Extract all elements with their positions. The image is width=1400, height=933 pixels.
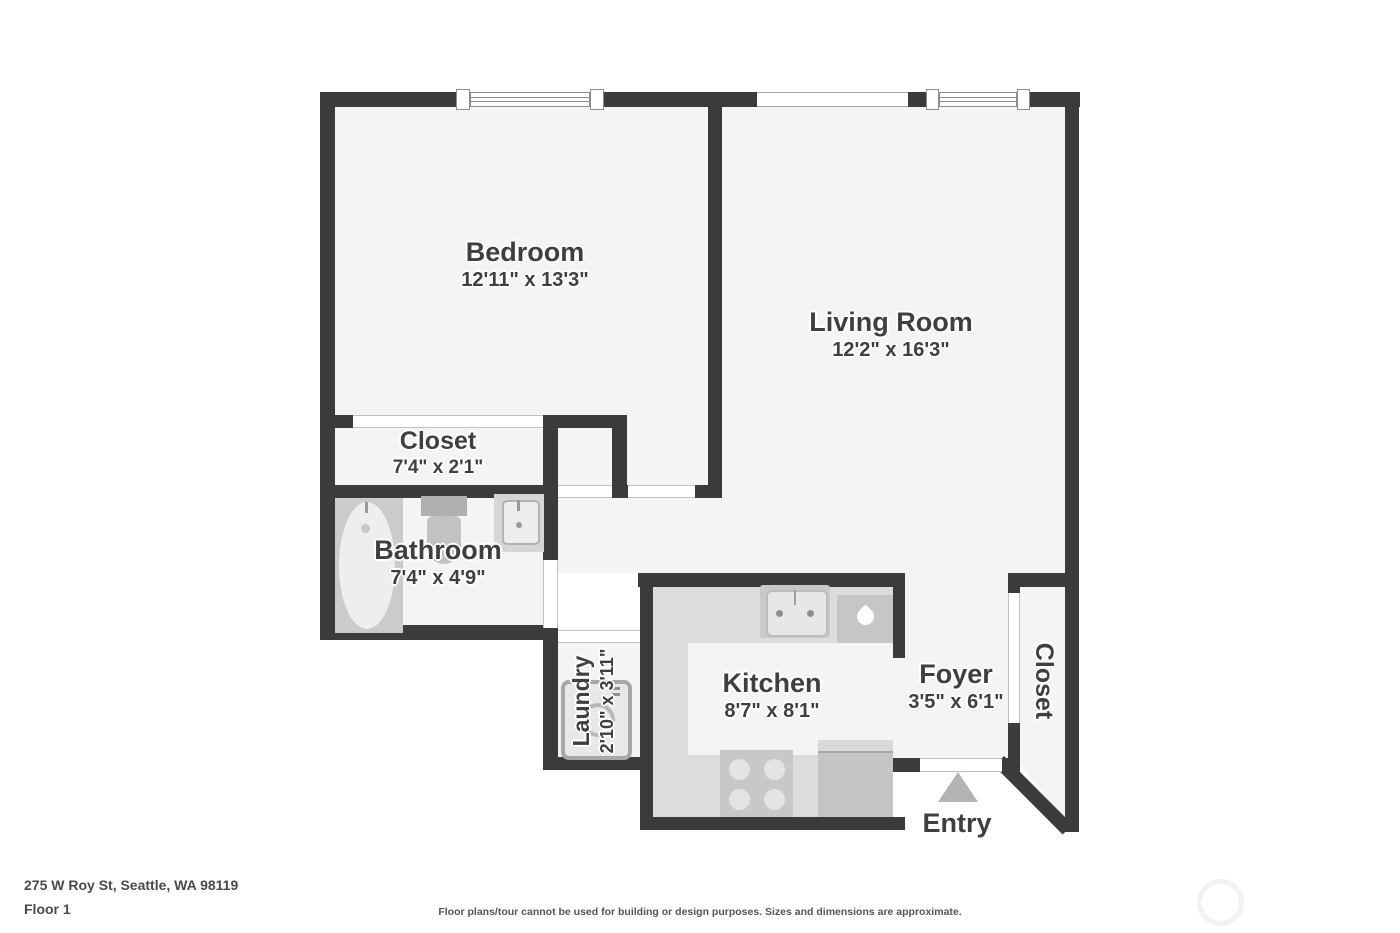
wall — [1008, 573, 1020, 593]
entry-arrow-icon — [938, 772, 978, 802]
disclaimer-text: Floor plans/tour cannot be used for buil… — [0, 906, 1400, 918]
living-room-floor — [722, 107, 1065, 498]
entry-label: Entry — [857, 808, 1057, 838]
kitchen-sink-divider — [794, 590, 796, 605]
bedroom-closet-dimensions: 7'4" x 2'1" — [338, 455, 538, 481]
bathroom-label: Bathroom 7'4" x 4'9" — [338, 535, 538, 592]
entry-name: Entry — [857, 808, 1057, 838]
window-cap — [1017, 89, 1030, 110]
wall — [695, 485, 722, 498]
door-opening — [558, 485, 612, 498]
window-glass — [939, 92, 1017, 107]
entry-door-opening — [920, 758, 1002, 772]
kitchen-sink-dot — [807, 610, 814, 617]
door-opening — [543, 560, 558, 628]
foyer-dimensions: 3'5" x 6'1" — [856, 689, 1056, 716]
stove-burner — [764, 789, 785, 810]
laundry-dimensions: 2'10" x 3'11" — [595, 649, 619, 754]
entry-closet-label: Closet — [1030, 643, 1058, 719]
wall — [543, 628, 558, 770]
bathroom-name: Bathroom — [338, 535, 538, 565]
window-cap — [590, 89, 604, 110]
stove-burner — [729, 759, 750, 780]
watermark-circle — [1197, 879, 1244, 926]
bedroom-closet-label: Closet 7'4" x 2'1" — [338, 427, 538, 481]
picture-window — [757, 92, 908, 107]
window-glass — [470, 92, 590, 107]
alcove-floor — [558, 428, 612, 485]
foyer-name: Foyer — [856, 659, 1056, 689]
door-opening — [558, 630, 640, 643]
laundry-name: Laundry — [569, 649, 595, 754]
door-opening — [628, 485, 695, 498]
bedroom-name: Bedroom — [375, 237, 675, 267]
bedroom-closet-name: Closet — [338, 427, 538, 455]
floor-plan-page: Bedroom 12'11" x 13'3" Living Room 12'2"… — [0, 0, 1400, 933]
living-room-dimensions: 12'2" x 16'3" — [741, 337, 1041, 364]
toilet-tank-icon — [421, 496, 467, 516]
wall — [320, 92, 335, 640]
wall — [543, 415, 558, 560]
dishwasher-panel — [818, 740, 893, 753]
address-text: 275 W Roy St, Seattle, WA 98119 — [24, 877, 238, 893]
stove-burner — [764, 759, 785, 780]
wall — [893, 587, 905, 658]
living-room-label: Living Room 12'2" x 16'3" — [741, 307, 1041, 364]
wall — [612, 485, 628, 498]
kitchen-sink-dot — [776, 610, 783, 617]
window-cap — [456, 89, 470, 110]
wall — [708, 107, 722, 498]
bathroom-sink-drain-icon — [516, 522, 522, 528]
bathroom-dimensions: 7'4" x 4'9" — [338, 565, 538, 592]
bedroom-label: Bedroom 12'11" x 13'3" — [375, 237, 675, 294]
wall — [612, 428, 627, 485]
foyer-label: Foyer 3'5" x 6'1" — [856, 659, 1056, 716]
bathtub-faucet-icon — [365, 502, 368, 513]
stove-icon — [720, 750, 793, 817]
bathroom-sink-faucet-icon — [517, 500, 520, 511]
bedroom-dimensions: 12'11" x 13'3" — [375, 267, 675, 294]
laundry-label: Laundry 2'10" x 3'11" — [569, 649, 619, 754]
wall — [1065, 92, 1079, 832]
window — [456, 89, 604, 110]
window — [926, 89, 1030, 110]
stove-burner — [729, 789, 750, 810]
window-cap — [926, 89, 939, 110]
living-room-name: Living Room — [741, 307, 1041, 337]
bathtub-drain-icon — [361, 524, 370, 533]
wall — [893, 758, 920, 772]
entry-closet-name: Closet — [1030, 643, 1058, 719]
wall — [1008, 723, 1020, 758]
hall-floor — [558, 498, 1065, 573]
